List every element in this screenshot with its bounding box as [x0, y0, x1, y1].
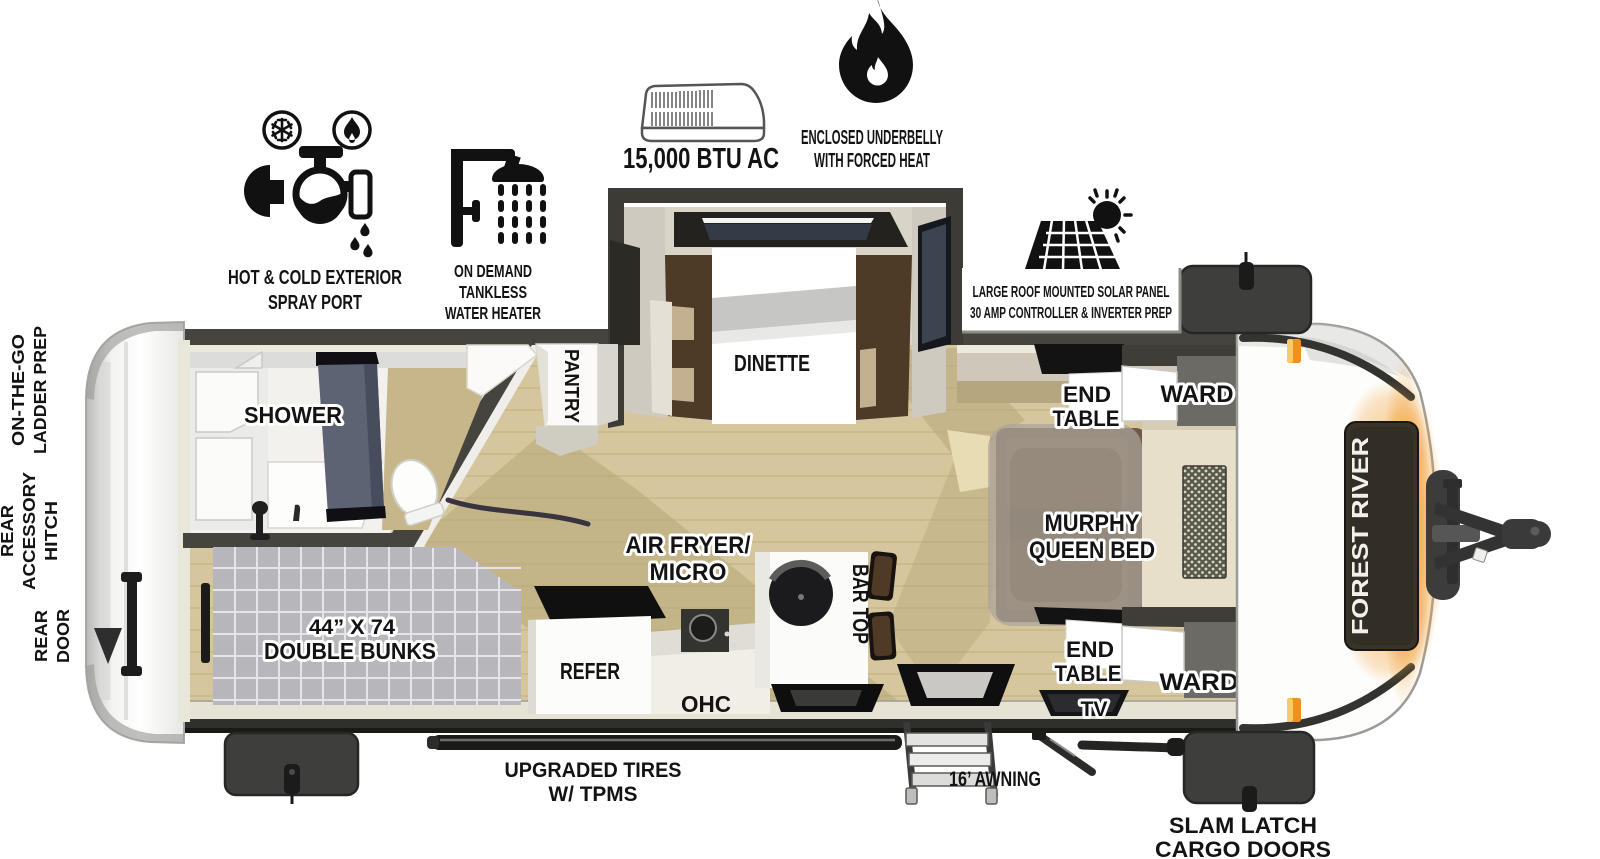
- svg-text:SPRAY PORT: SPRAY PORT: [268, 292, 362, 314]
- svg-text:LARGE ROOF MOUNTED SOLAR PANEL: LARGE ROOF MOUNTED SOLAR PANEL: [973, 284, 1170, 301]
- svg-text:W/ TPMS: W/ TPMS: [549, 783, 638, 806]
- svg-text:REAR: REAR: [0, 505, 17, 557]
- svg-text:TABLE: TABLE: [1053, 406, 1120, 431]
- svg-text:ACCESSORY: ACCESSORY: [19, 472, 39, 590]
- svg-text:ENCLOSED UNDERBELLY: ENCLOSED UNDERBELLY: [801, 127, 943, 149]
- svg-text:PANTRY: PANTRY: [560, 349, 582, 424]
- svg-text:DINETTE: DINETTE: [734, 350, 810, 376]
- svg-text:SHOWER: SHOWER: [244, 402, 342, 428]
- svg-text:OHC: OHC: [681, 691, 731, 717]
- svg-text:15,000 BTU AC: 15,000 BTU AC: [623, 143, 779, 175]
- svg-text:END: END: [1066, 637, 1114, 662]
- svg-text:CARGO DOORS: CARGO DOORS: [1155, 837, 1331, 859]
- svg-text:FOREST RIVER: FOREST RIVER: [1347, 437, 1373, 635]
- svg-text:MICRO: MICRO: [650, 559, 727, 586]
- svg-text:WARD: WARD: [1161, 381, 1234, 408]
- svg-text:HOT & COLD EXTERIOR: HOT & COLD EXTERIOR: [228, 267, 402, 289]
- svg-text:HITCH: HITCH: [41, 501, 61, 561]
- svg-text:ON-THE-GO: ON-THE-GO: [8, 334, 28, 446]
- svg-text:LADDER PREP: LADDER PREP: [30, 326, 50, 454]
- svg-text:44” X 74: 44” X 74: [309, 616, 395, 639]
- svg-text:30 AMP CONTROLLER & INVERTER P: 30 AMP CONTROLLER & INVERTER PREP: [970, 305, 1172, 322]
- svg-text:MURPHY: MURPHY: [1045, 510, 1140, 537]
- svg-text:WARD: WARD: [1160, 669, 1239, 696]
- svg-text:WATER HEATER: WATER HEATER: [445, 303, 541, 323]
- svg-text:UPGRADED TIRES: UPGRADED TIRES: [505, 759, 682, 782]
- svg-text:DOUBLE BUNKS: DOUBLE BUNKS: [264, 638, 436, 664]
- svg-text:TABLE: TABLE: [1055, 661, 1122, 686]
- svg-text:DOOR: DOOR: [53, 609, 73, 663]
- svg-text:16’ AWNING: 16’ AWNING: [949, 768, 1041, 791]
- svg-text:WITH FORCED HEAT: WITH FORCED HEAT: [814, 150, 930, 172]
- svg-text:AIR FRYER/: AIR FRYER/: [626, 532, 751, 559]
- svg-text:TV: TV: [1081, 698, 1108, 721]
- svg-text:REAR: REAR: [31, 610, 51, 662]
- svg-text:END: END: [1063, 382, 1111, 407]
- svg-text:REFER: REFER: [560, 658, 620, 684]
- svg-text:ON DEMAND: ON DEMAND: [454, 261, 532, 281]
- svg-text:SLAM LATCH: SLAM LATCH: [1169, 813, 1317, 838]
- svg-text:TANKLESS: TANKLESS: [459, 282, 527, 302]
- svg-text:QUEEN BED: QUEEN BED: [1029, 537, 1155, 564]
